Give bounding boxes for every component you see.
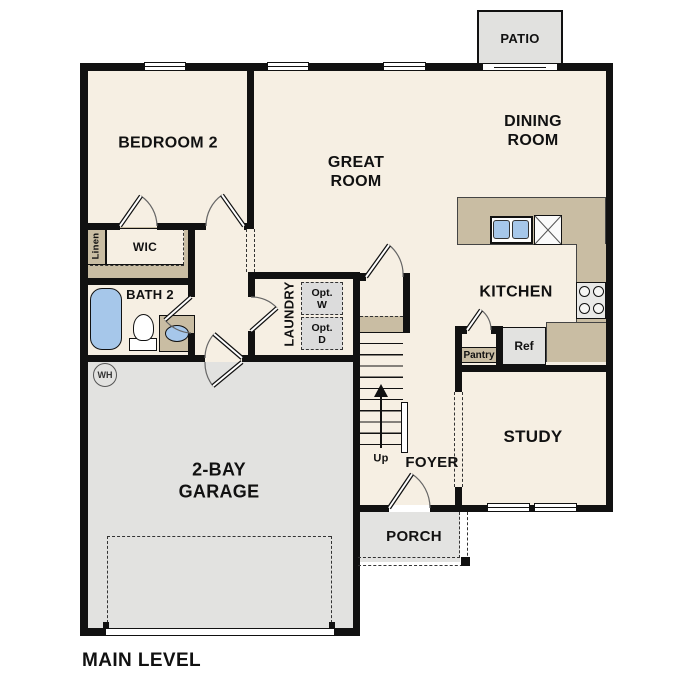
wall (80, 355, 205, 362)
burner (593, 286, 604, 297)
great-room-label: GREAT ROOM (306, 153, 406, 191)
water-heater: WH (93, 363, 117, 387)
garage-door-post (329, 622, 335, 628)
garage-door-track-right (331, 536, 332, 628)
wall (353, 272, 360, 636)
laundry-label: LAUNDRY (282, 281, 297, 346)
study-label: STUDY (503, 427, 562, 447)
opening-foyer-study (454, 392, 463, 487)
optional-washer-label: Opt. W (309, 287, 335, 311)
refrigerator-label: Ref (514, 339, 533, 353)
window (267, 62, 309, 71)
refrigerator: Ref (502, 327, 546, 365)
patio-label: PATIO (500, 31, 539, 46)
garage-door (106, 628, 334, 636)
island-sink (490, 216, 533, 244)
stairs-up-label: Up (373, 452, 388, 465)
wall (80, 278, 195, 285)
stove (576, 282, 606, 319)
sink-basin-right (512, 220, 529, 239)
wall (247, 63, 254, 230)
garage-label: 2-BAY GARAGE (159, 459, 279, 502)
bedroom2-label: BEDROOM 2 (118, 133, 218, 152)
garage-door-track-top (107, 536, 331, 537)
opening-hall-great-room (246, 229, 255, 272)
wall (496, 330, 503, 365)
wall (455, 365, 613, 372)
wall (188, 333, 195, 355)
bath2-label: BATH 2 (126, 287, 174, 303)
floor-plan: PATIO Ref Pantry Opt. W Op (0, 0, 687, 687)
wall (242, 355, 360, 362)
vanity-sink (165, 325, 189, 342)
stair-rail (401, 402, 408, 453)
stairs-up-arrow-line (380, 396, 382, 448)
pantry-label: Pantry (463, 350, 494, 361)
wall (455, 326, 467, 334)
dishwasher (534, 215, 562, 245)
porch-label: PORCH (386, 528, 442, 546)
wall (360, 273, 366, 281)
water-heater-label: WH (98, 370, 113, 380)
window (487, 503, 530, 512)
optional-dryer-label: Opt. D (309, 322, 335, 346)
window (534, 503, 577, 512)
toilet-bowl (133, 314, 154, 341)
stairs-up-arrow-head (374, 384, 388, 397)
wall (248, 272, 360, 279)
linen-label: Linen (91, 233, 102, 260)
burner (593, 303, 604, 314)
garage-door-post (103, 622, 109, 628)
wall (188, 223, 195, 297)
kitchen-label: KITCHEN (479, 282, 552, 301)
wall (80, 223, 120, 230)
wic-shelf-dashed-line (85, 265, 184, 266)
wall (455, 487, 462, 512)
foyer-label: FOYER (405, 454, 458, 472)
garage-door-track-left (107, 536, 108, 628)
wall (606, 63, 613, 512)
stair-landing (360, 316, 403, 333)
sink-basin-left (493, 220, 510, 239)
wall (157, 223, 206, 230)
wic-label: WIC (133, 240, 157, 254)
bathtub (90, 288, 122, 350)
window (383, 62, 426, 71)
level-label: MAIN LEVEL (82, 650, 201, 672)
porch-post (461, 557, 470, 566)
window (144, 62, 186, 71)
wall (248, 272, 255, 297)
patio-sliding-door (483, 63, 557, 71)
pantry-shelf: Pantry (461, 347, 497, 363)
optional-dryer: Opt. D (301, 317, 343, 350)
wall (455, 330, 462, 392)
wall (248, 331, 255, 362)
wall (491, 326, 503, 334)
optional-washer: Opt. W (301, 282, 343, 315)
kitchen-bottom-counter (546, 322, 606, 362)
wall (403, 273, 410, 333)
patio-floor: PATIO (477, 10, 563, 67)
wall (80, 63, 88, 636)
dining-room-label: DINING ROOM (478, 112, 588, 150)
burner (579, 303, 590, 314)
burner (579, 286, 590, 297)
